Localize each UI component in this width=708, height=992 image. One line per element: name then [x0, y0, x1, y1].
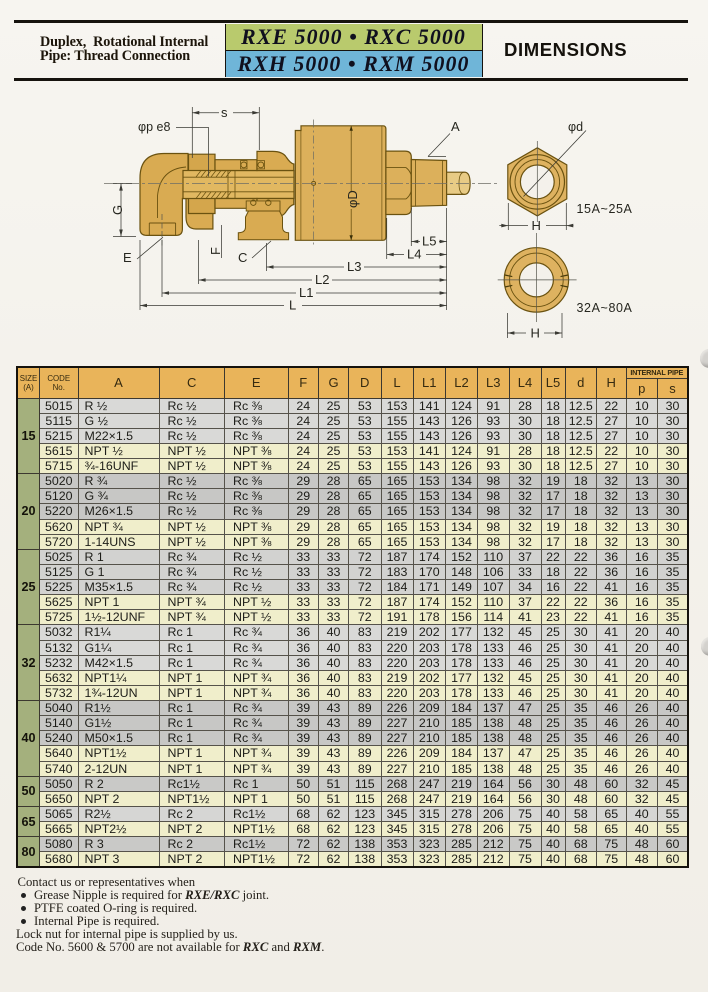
svg-text:L1: L1	[299, 285, 313, 300]
svg-text:φD: φD	[345, 190, 360, 208]
svg-text:15A~25A: 15A~25A	[577, 202, 633, 216]
svg-text:G: G	[110, 205, 125, 215]
svg-text:L3: L3	[347, 259, 361, 274]
svg-text:L4: L4	[407, 247, 421, 262]
svg-text:L5: L5	[422, 234, 436, 249]
svg-text:A: A	[451, 119, 460, 134]
svg-text:φd: φd	[568, 120, 583, 134]
svg-text:φp e8: φp e8	[138, 120, 170, 134]
svg-text:32A~80A: 32A~80A	[577, 301, 633, 315]
svg-text:L2: L2	[315, 272, 329, 287]
svg-text:s: s	[221, 105, 228, 120]
svg-text:F: F	[208, 247, 223, 255]
svg-text:E: E	[123, 250, 132, 265]
svg-text:H: H	[532, 218, 541, 233]
svg-text:C: C	[238, 250, 247, 265]
svg-text:H: H	[531, 326, 540, 341]
svg-text:L: L	[289, 298, 296, 313]
